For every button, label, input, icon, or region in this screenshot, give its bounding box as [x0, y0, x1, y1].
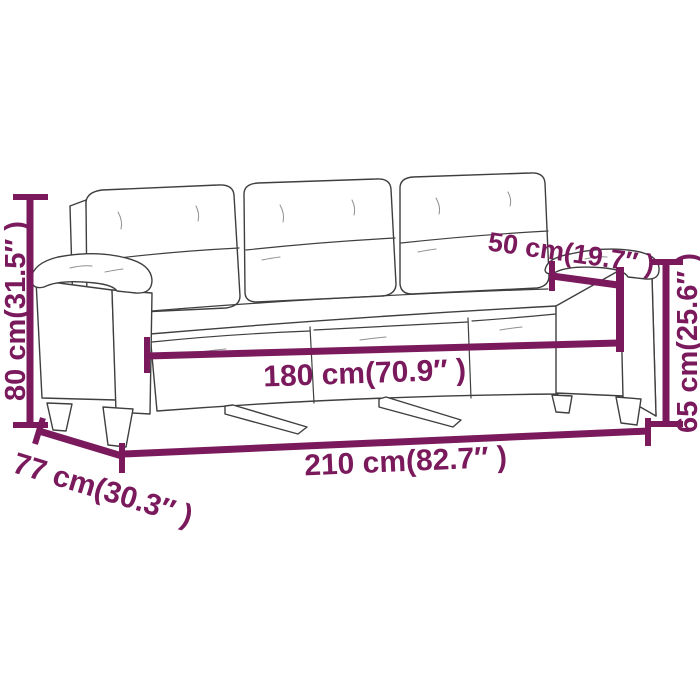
left-armrest-side-face: [36, 280, 116, 400]
total-height-dim-label: 80 cm(31.5″ ): [0, 221, 32, 401]
leg-left-outer: [47, 403, 72, 431]
leg-right-inner: [552, 395, 572, 413]
leg-sled-right: [379, 397, 461, 427]
back-cushion-middle: [244, 179, 396, 302]
leg-sled-left: [225, 405, 307, 434]
armrest-height-dim-label: 65 cm(25.6″ ): [672, 253, 700, 433]
dimension-total-width: 210 cm(82.7″ ): [122, 418, 648, 482]
sofa-illustration: [31, 173, 659, 447]
dimension-armrest-height: 65 cm(25.6″ ): [650, 253, 700, 433]
total-depth-dim-cap-left: [35, 418, 43, 444]
diagram-canvas: 80 cm(31.5″ ) 50 cm(19.7″ ) 65 cm(25.6″ …: [0, 0, 700, 700]
sofa-dimension-diagram: 80 cm(31.5″ ) 50 cm(19.7″ ) 65 cm(25.6″ …: [0, 0, 700, 700]
right-armrest-front-panel: [620, 270, 656, 416]
leg-front-right: [616, 397, 641, 425]
dimension-total-depth: 77 cm(30.3″ ): [9, 418, 197, 533]
total-depth-dim-label: 77 cm(30.3″ ): [9, 447, 197, 533]
leg-front-left: [103, 407, 133, 447]
